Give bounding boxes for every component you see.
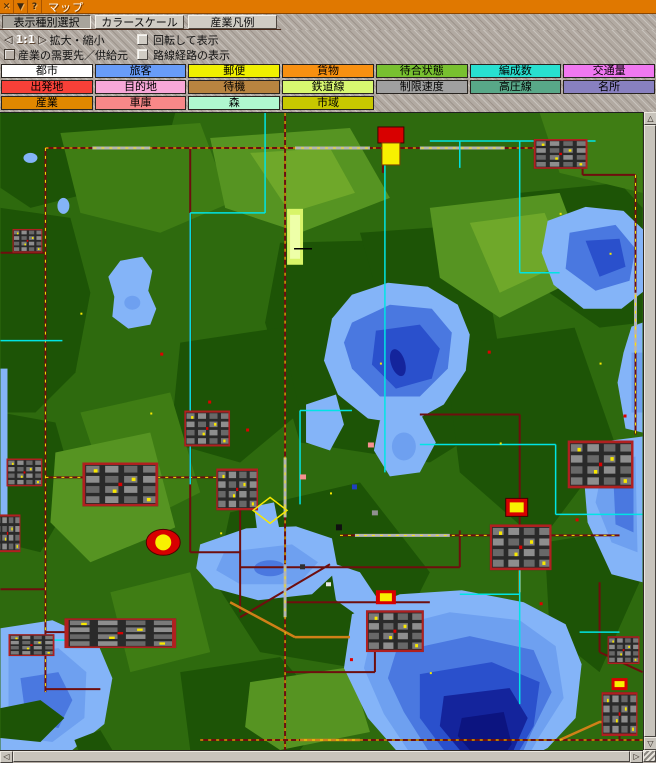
legend-cell-旅客[interactable]: 旅客 [95, 64, 187, 78]
scroll-up-icon[interactable]: △ [644, 112, 656, 125]
vertical-scrollbar[interactable]: △ ▽ [643, 112, 656, 750]
title-bar[interactable]: ✕ ▼ ? マップ [0, 0, 656, 14]
legend-cell-目的地[interactable]: 目的地 [95, 80, 187, 94]
help-icon[interactable]: ? [28, 0, 42, 13]
resize-grip[interactable] [643, 750, 656, 762]
legend-cell-市域[interactable]: 市域 [282, 96, 374, 110]
zoom-out-button[interactable]: ◁ [4, 34, 12, 46]
legend-cell-都市[interactable]: 都市 [1, 64, 93, 78]
vertical-scroll-thumb[interactable] [644, 125, 656, 737]
map-controls: ◁ 1:1 ▷ 拡大・縮小 回転して表示 産業の需要先／供給元 路線経路の表示 [0, 30, 656, 62]
legend-cell-名所[interactable]: 名所 [563, 80, 655, 94]
routes-checkbox[interactable] [137, 49, 148, 60]
legend-cell-産業[interactable]: 産業 [1, 96, 93, 110]
zoom-label: 拡大・縮小 [50, 32, 105, 48]
legend-cell-編成数[interactable]: 編成数 [470, 64, 562, 78]
legend-cell-鉄道線[interactable]: 鉄道線 [282, 80, 374, 94]
zoom-in-button[interactable]: ▷ [38, 34, 46, 46]
legend-cell-待機[interactable]: 待機 [188, 80, 280, 94]
routes-label: 路線経路の表示 [153, 47, 230, 63]
legend-cell-出発地[interactable]: 出発地 [1, 80, 93, 94]
scroll-right-icon[interactable]: ▷ [630, 751, 643, 763]
tab-strip: 表示種別選択 カラースケール 産業凡例 [0, 14, 656, 30]
tab-industry-legend[interactable]: 産業凡例 [188, 15, 277, 29]
industry-links-label: 産業の需要先／供給元 [18, 47, 128, 63]
horizontal-scroll-thumb[interactable] [13, 751, 630, 762]
legend-cell-郵便[interactable]: 郵便 [188, 64, 280, 78]
tab-display-type[interactable]: 表示種別選択 [2, 15, 91, 29]
horizontal-scrollbar[interactable]: ◁ ▷ [0, 750, 643, 762]
tab-strip-shadow [0, 29, 281, 30]
legend-cell-貨物[interactable]: 貨物 [282, 64, 374, 78]
window-title: マップ [48, 0, 84, 15]
map-region: △ ▽ [0, 112, 656, 750]
shade-icon[interactable]: ▼ [14, 0, 28, 13]
tab-color-scale[interactable]: カラースケール [95, 15, 184, 29]
legend-cell-高圧線[interactable]: 高圧線 [470, 80, 562, 94]
legend-cell-車庫[interactable]: 車庫 [95, 96, 187, 110]
rotate-label: 回転して表示 [153, 32, 219, 48]
zoom-level: 1:1 [15, 33, 35, 46]
legend-cell-森[interactable]: 森 [188, 96, 280, 110]
bottom-bar: ◁ ▷ [0, 750, 656, 762]
industry-links-checkbox[interactable] [4, 49, 15, 60]
legend-cell-制限速度[interactable]: 制限速度 [376, 80, 468, 94]
rotate-checkbox[interactable] [137, 34, 148, 45]
map-window: { "window": { "title": "マップ", "close_gly… [0, 0, 656, 762]
legend-cell-交通量[interactable]: 交通量 [563, 64, 655, 78]
map-canvas[interactable] [0, 112, 643, 750]
legend-cell-待合状態[interactable]: 待合状態 [376, 64, 468, 78]
close-icon[interactable]: ✕ [0, 0, 14, 13]
legend-grid: 都市旅客郵便貨物待合状態編成数交通量出発地目的地待機鉄道線制限速度高圧線名所産業… [0, 62, 656, 112]
scroll-left-icon[interactable]: ◁ [0, 751, 13, 763]
scroll-down-icon[interactable]: ▽ [644, 737, 656, 750]
